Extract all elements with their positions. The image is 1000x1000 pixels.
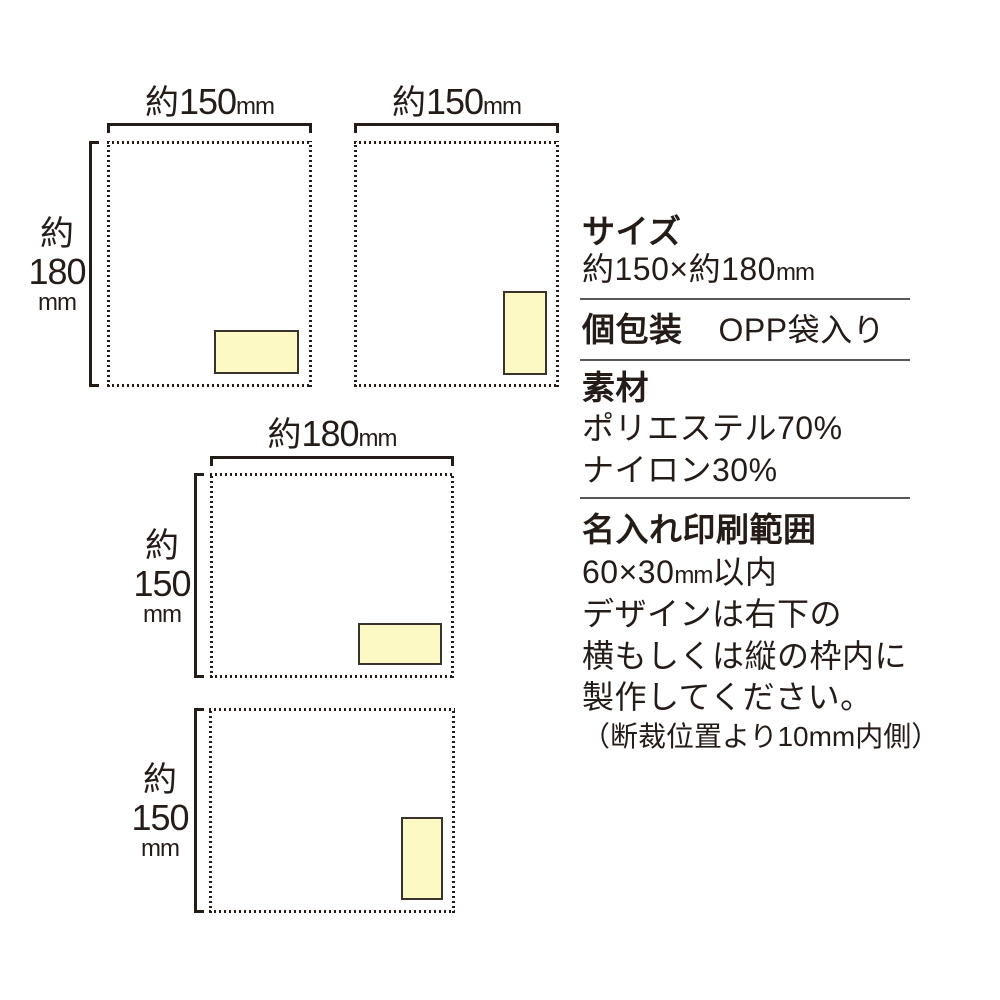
width-label-cloth1-prefix: 約 [145, 86, 179, 120]
width-label-cloth1: 約150mm [107, 84, 312, 120]
spec-heading-material: 素材 [582, 371, 649, 406]
spec-value-material-1: ポリエステル70% [582, 412, 843, 446]
spec-line-print-area-3: 横もしくは縦の枠内に [582, 640, 907, 674]
width-label-cloth1-value: 150 [179, 84, 236, 120]
spec-note-unit: mm [809, 721, 856, 752]
spec-value-size-unit: mm [776, 259, 814, 286]
spec-line-print-area-1-unit: mm [674, 562, 712, 589]
width-label-cloth3: 約180mm [210, 416, 454, 452]
spec-heading-packaging: 個包装 [582, 311, 683, 348]
divider-2 [580, 359, 910, 361]
print-area-horizontal-3 [358, 623, 442, 665]
height-label-cloth4-value: 150 [131, 799, 188, 836]
width-label-cloth3-value: 180 [301, 416, 358, 452]
width-label-cloth3-unit: mm [359, 427, 397, 451]
height-label-cloth3-prefix: 約 [145, 528, 179, 565]
height-label-cloth3-value: 150 [133, 565, 190, 602]
spec-value-packaging: OPP袋入り [719, 312, 886, 348]
width-label-cloth1-unit: mm [236, 95, 274, 119]
spec-row-packaging: 個包装OPP袋入り [582, 313, 885, 348]
width-bracket-cloth2 [354, 123, 559, 133]
width-label-cloth2-value: 150 [426, 84, 483, 120]
height-label-cloth1-unit: mm [38, 290, 76, 316]
height-bracket-cloth1 [89, 141, 99, 387]
spec-line-print-area-1: 60×30mm以内 [582, 556, 777, 590]
spec-heading-size: サイズ [582, 215, 682, 250]
width-bracket-cloth1 [107, 123, 312, 133]
width-label-cloth2-prefix: 約 [392, 86, 426, 120]
height-label-cloth4: 約 150 mm [115, 762, 205, 862]
cloth-diagram-1 [107, 141, 312, 387]
spec-value-size: 約150×約180mm [582, 253, 814, 287]
height-label-cloth1-value: 180 [28, 253, 85, 290]
height-label-cloth1-prefix: 約 [40, 216, 74, 253]
height-label-cloth4-unit: mm [141, 836, 179, 862]
height-bracket-cloth4 [194, 708, 204, 913]
spec-note-post: 内側） [855, 721, 939, 752]
divider-1 [580, 298, 910, 300]
spec-heading-print-area: 名入れ印刷範囲 [582, 513, 817, 548]
width-bracket-cloth3 [210, 456, 454, 466]
cloth-diagram-4 [209, 708, 455, 913]
width-label-cloth3-prefix: 約 [267, 418, 301, 452]
height-label-cloth4-prefix: 約 [143, 762, 177, 799]
spec-value-size-main: 約150×約180 [582, 251, 776, 287]
print-area-vertical-4 [401, 817, 443, 900]
height-bracket-cloth3 [194, 473, 204, 678]
print-area-vertical-2 [503, 291, 547, 375]
spec-sheet: 約150mm 約 180 mm 約150mm 約180mm 約 150 mm 約… [0, 0, 1000, 1000]
spec-line-print-area-2: デザインは右下の [582, 598, 842, 632]
cloth-diagram-2 [354, 141, 559, 387]
divider-3 [580, 497, 910, 499]
print-area-horizontal-1 [214, 330, 299, 374]
spec-line-print-area-4: 製作してください。 [582, 681, 873, 715]
width-label-cloth2: 約150mm [354, 84, 559, 120]
spec-value-material-2: ナイロン30% [582, 454, 778, 488]
cloth-diagram-3 [210, 473, 454, 678]
width-label-cloth2-unit: mm [483, 95, 521, 119]
height-label-cloth3-unit: mm [143, 602, 181, 628]
spec-note-pre: （断裁位置より10 [582, 721, 809, 752]
spec-line-print-area-1-suffix: 以内 [712, 554, 777, 590]
spec-line-print-area-1-main: 60×30 [582, 554, 674, 590]
spec-note-print-area: （断裁位置より10mm内側） [582, 722, 939, 751]
